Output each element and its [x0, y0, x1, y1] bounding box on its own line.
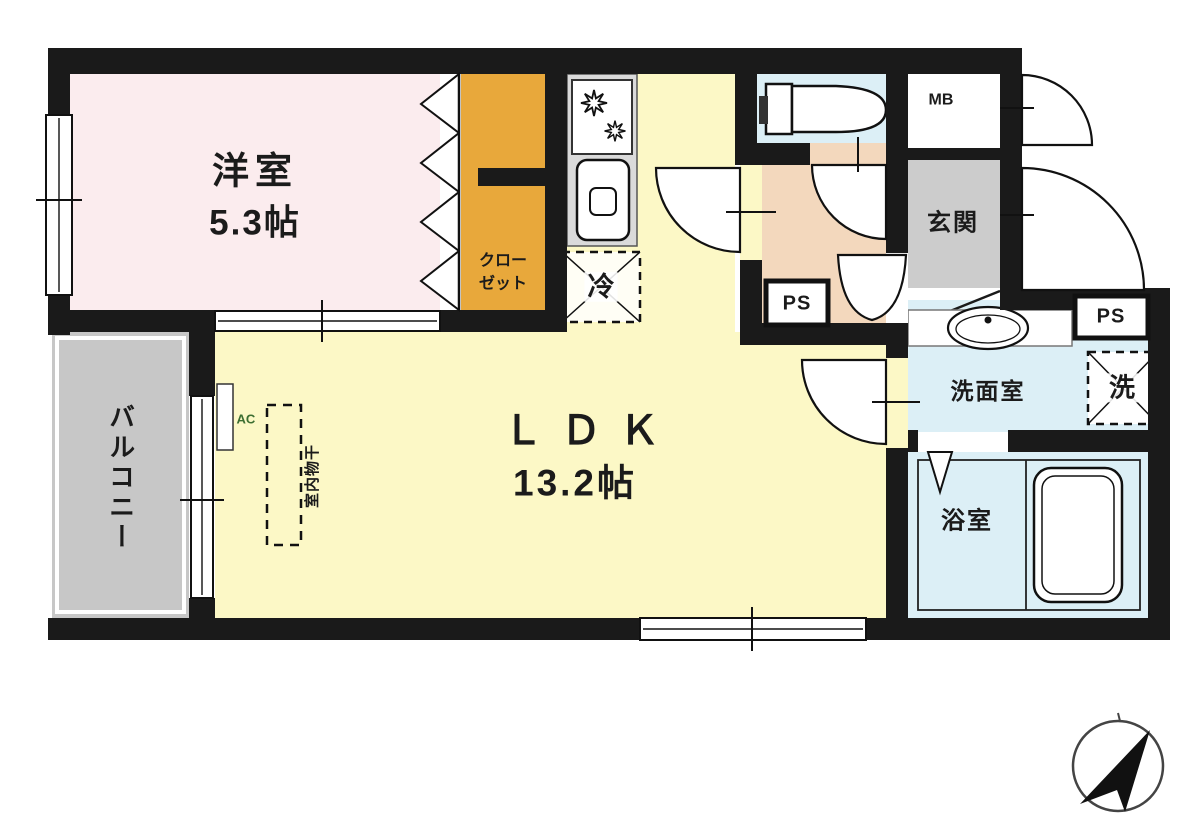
entrance-label: 玄関 — [927, 210, 979, 235]
western-room-label: 洋室 — [212, 153, 298, 192]
sink-drain-icon — [590, 188, 616, 215]
meter-box-door — [1022, 75, 1092, 145]
ldk-label: ＬＤＫ — [503, 410, 677, 452]
western-room-floor — [70, 74, 440, 310]
washroom-label: 洗面室 — [951, 379, 1026, 403]
balcony-label: バルコニー — [106, 403, 133, 553]
bathroom-label: 浴室 — [941, 508, 993, 533]
stove-icon — [572, 80, 632, 154]
compass-icon — [1073, 713, 1163, 812]
pipe-space-right-label: PS — [1097, 307, 1126, 328]
washer-label: 洗 — [1106, 373, 1138, 402]
ac-unit-icon — [217, 384, 233, 450]
bathroom-opening — [918, 432, 1008, 452]
meter-box-floor — [908, 74, 1000, 148]
washbasin — [908, 307, 1072, 349]
faucet-icon — [985, 317, 992, 324]
toilet-opening — [810, 143, 886, 165]
meter-box-label: MB — [929, 93, 954, 110]
closet-label-line2: ゼット — [479, 277, 527, 294]
closet-floor — [461, 74, 545, 310]
kitchen — [567, 74, 637, 246]
ldk-size: 13.2帖 — [513, 465, 637, 504]
refrigerator-label: 冷 — [585, 272, 618, 302]
indoor-drying-label: 室内物干 — [305, 444, 321, 508]
closet-label-line1: クロー — [479, 254, 527, 271]
western-room-size: 5.3帖 — [209, 206, 301, 243]
entry-door — [1022, 168, 1144, 290]
floor-plan: 洋室 5.3帖 クロー ゼット ＬＤＫ 13.2帖 バルコニー 玄関 洗面室 浴… — [0, 0, 1200, 840]
toilet-icon — [759, 84, 886, 134]
ac-label: AC — [237, 413, 252, 428]
pipe-space-hall-label: PS — [783, 294, 812, 315]
